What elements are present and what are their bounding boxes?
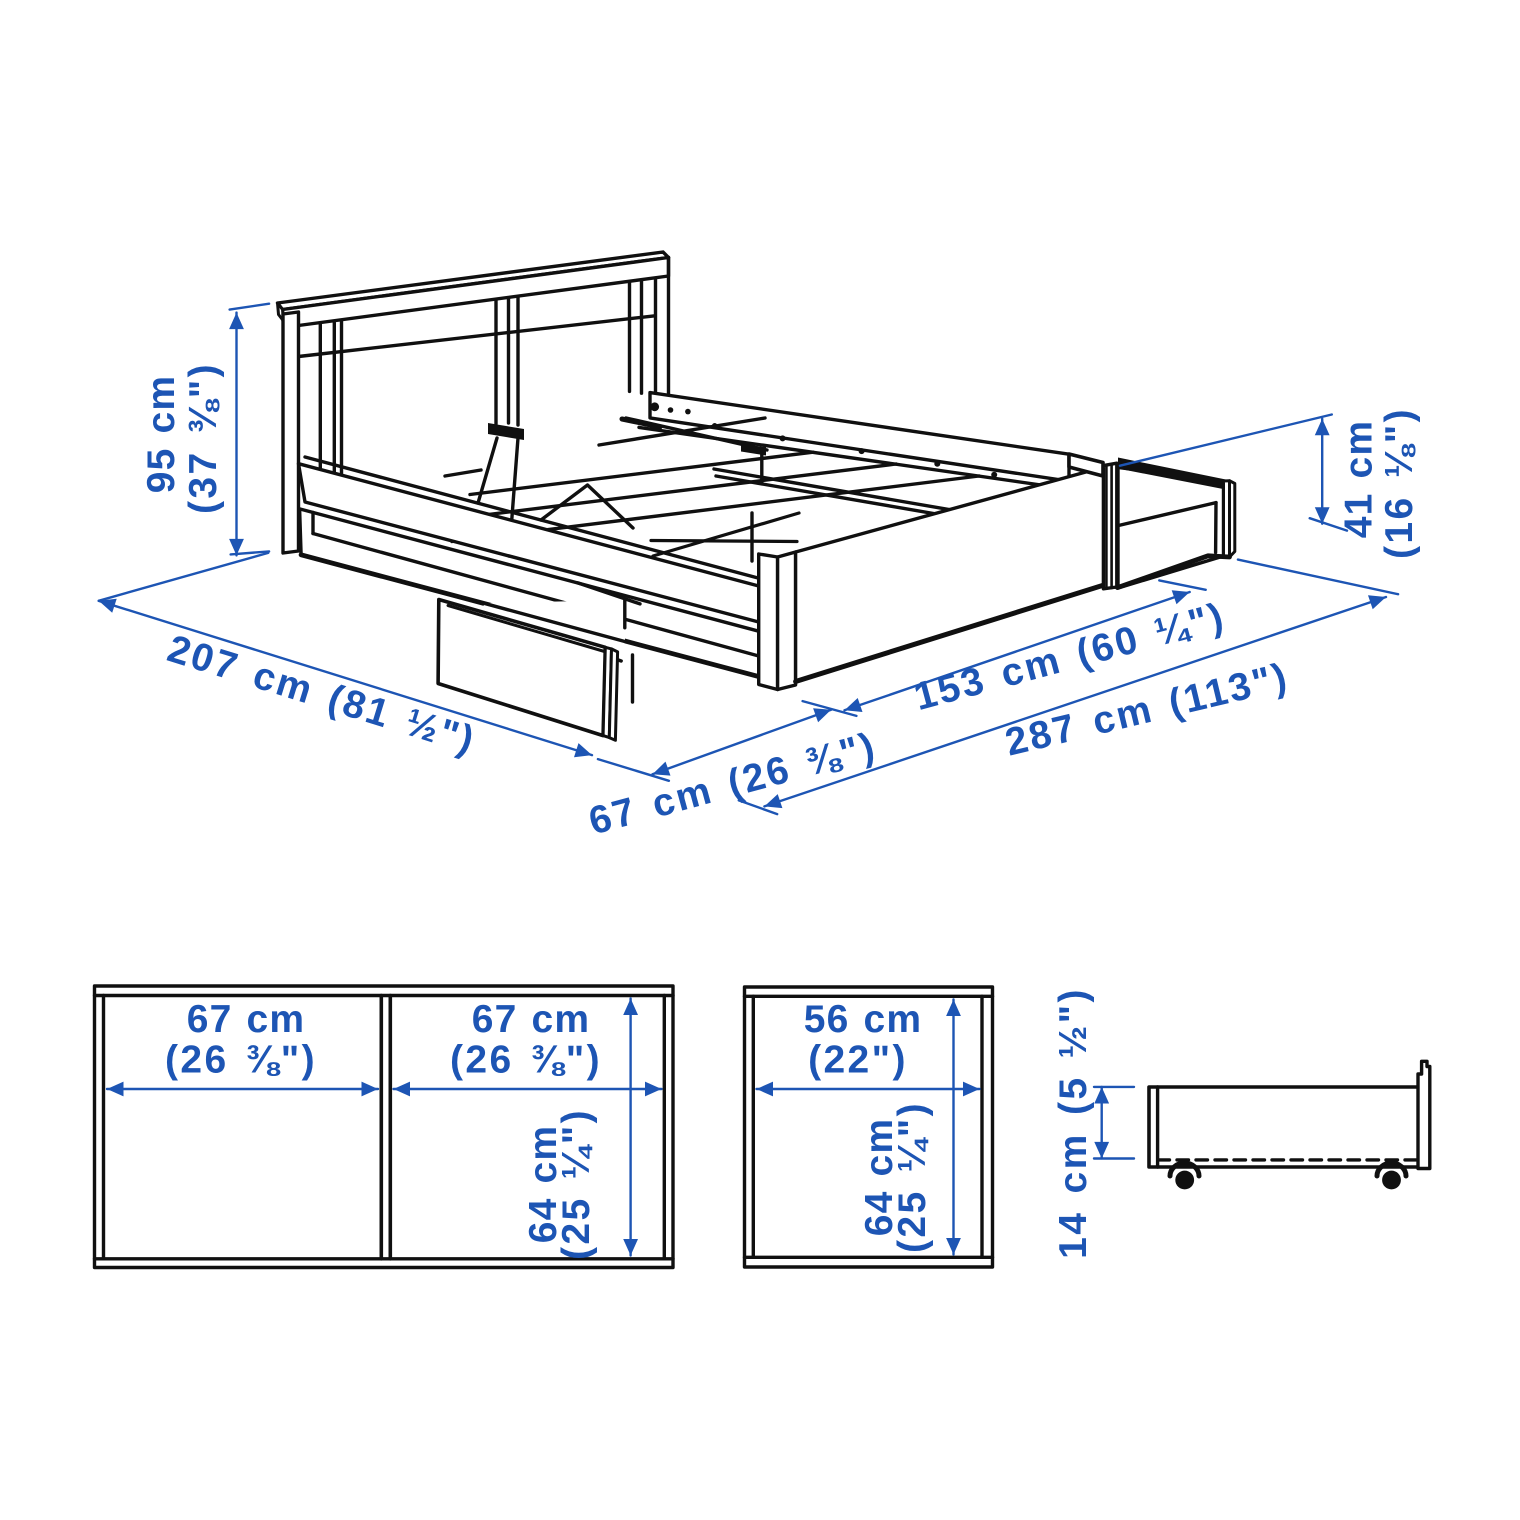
svg-text:(26 ⅜"): (26 ⅜") bbox=[450, 1039, 602, 1082]
svg-text:(25 ¼"): (25 ¼") bbox=[891, 1101, 934, 1253]
svg-text:41 cm: 41 cm bbox=[1338, 420, 1381, 539]
svg-text:67 cm: 67 cm bbox=[472, 998, 591, 1041]
svg-text:95 cm: 95 cm bbox=[140, 375, 183, 494]
svg-text:(16 ⅛"): (16 ⅛") bbox=[1378, 407, 1421, 559]
svg-text:(25 ¼"): (25 ¼") bbox=[555, 1108, 598, 1260]
svg-text:(22"): (22") bbox=[808, 1039, 908, 1082]
svg-text:(37 ⅜"): (37 ⅜") bbox=[182, 362, 225, 514]
svg-text:56 cm: 56 cm bbox=[804, 998, 923, 1041]
svg-text:(26 ⅜"): (26 ⅜") bbox=[165, 1039, 317, 1082]
svg-text:14 cm (5 ½"): 14 cm (5 ½") bbox=[1052, 987, 1095, 1259]
svg-text:67 cm: 67 cm bbox=[187, 998, 306, 1041]
